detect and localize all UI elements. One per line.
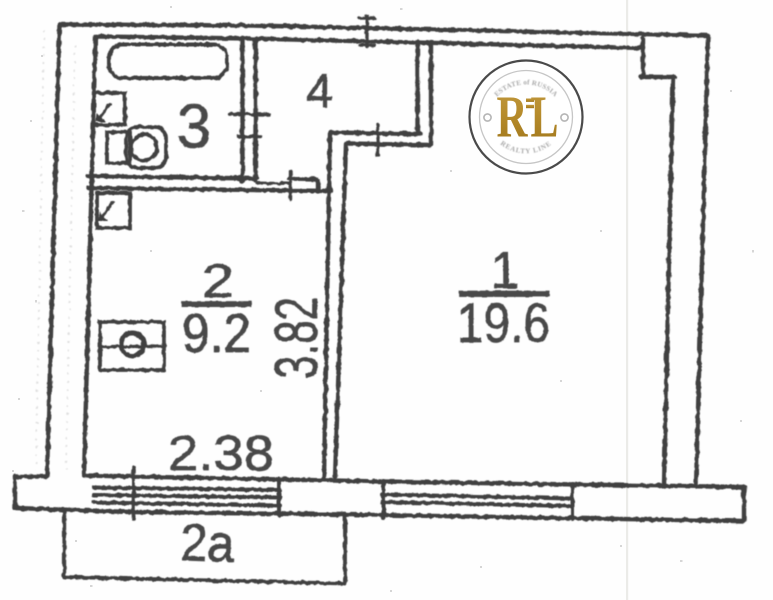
svg-text:3: 3: [177, 93, 211, 162]
svg-text:4: 4: [306, 66, 333, 119]
svg-text:19.6: 19.6: [457, 291, 550, 354]
svg-text:2: 2: [202, 256, 234, 308]
svg-text:2a: 2a: [179, 513, 236, 574]
svg-text:9.2: 9.2: [182, 302, 251, 364]
svg-text:3.82: 3.82: [263, 297, 330, 379]
svg-text:2.38: 2.38: [168, 427, 274, 481]
